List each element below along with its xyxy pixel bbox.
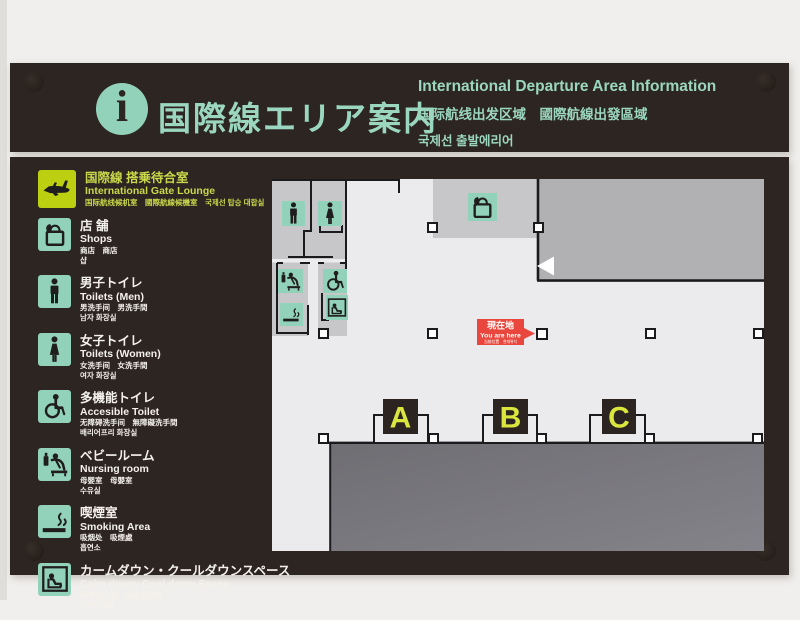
legend-korean: 흡연소 xyxy=(80,543,150,553)
sign-title-translations: International Departure Area Information… xyxy=(418,78,716,149)
gate-c-label: C xyxy=(608,402,630,435)
legend-cjk: 无障碍洗手间 無障礙洗手間 xyxy=(80,418,178,428)
smoking-icon xyxy=(38,505,71,538)
smoking-icon xyxy=(280,303,303,326)
legend-item-toilets-men: 男子トイレ Toilets (Men) 男洗手间 男洗手間 남자 화장실 xyxy=(38,275,270,322)
sign-main-panel: 国際線 搭乗待合室 International Gate Lounge 国际航线… xyxy=(10,157,789,575)
legend-korean: 남자 화장실 xyxy=(80,313,148,323)
legend-title: 店 舗 xyxy=(80,219,118,233)
legend-english: Nursing room xyxy=(80,463,155,476)
legend-english: Shops xyxy=(80,233,118,246)
legend-cjk: 国际航线候机室 國際航線候機室 국제선 탑승 대합실 xyxy=(85,198,264,208)
gate-b-label: B xyxy=(500,402,522,435)
legend-cjk: 吸烟处 吸煙處 xyxy=(80,533,150,543)
legend-title: カームダウン・クールダウンスペース xyxy=(80,564,290,578)
legend-title: 男子トイレ xyxy=(80,276,148,290)
legend-korean: 수유실 xyxy=(80,486,155,496)
legend-item-shops: 店 舗 Shops 商店 商店 샵 xyxy=(38,218,270,265)
legend-english: Calm down, Cool down Space xyxy=(80,578,290,591)
shopping-bag-icon xyxy=(38,218,71,251)
airplane-icon xyxy=(38,170,76,208)
sign-title-chinese: 国际航线出发区域 國際航線出發區域 xyxy=(418,103,716,123)
calm-down-icon xyxy=(38,563,71,596)
legend-item-accessible-toilet: 多機能トイレ Accesible Toilet 无障碍洗手间 無障礙洗手間 배리… xyxy=(38,390,270,437)
upper-block-area xyxy=(538,179,764,282)
legend-english: Smoking Area xyxy=(80,521,150,534)
legend-cjk: 母婴室 母嬰室 xyxy=(80,476,155,486)
legend-korean: 심리안정실 xyxy=(80,601,290,611)
map-legend: 国際線 搭乗待合室 International Gate Lounge 国际航线… xyxy=(38,170,270,620)
sign-title-english: International Departure Area Information xyxy=(418,78,716,96)
gate-a-label: A xyxy=(390,402,412,435)
legend-cjk: 女洗手间 女洗手間 xyxy=(80,361,161,371)
legend-item-nursing-room: ベビールーム Nursing room 母婴室 母嬰室 수유실 xyxy=(38,448,270,495)
nursing-room-icon xyxy=(38,448,71,481)
restricted-area xyxy=(330,444,764,551)
legend-english: Toilets (Men) xyxy=(80,291,148,304)
legend-item-calm-down-space: カームダウン・クールダウンスペース Calm down, Cool down S… xyxy=(38,563,270,610)
legend-item-smoking-area: 喫煙室 Smoking Area 吸烟处 吸煙處 흡연소 xyxy=(38,505,270,552)
legend-title: ベビールーム xyxy=(80,449,155,463)
background-wall-edge xyxy=(0,0,7,600)
man-icon xyxy=(38,275,71,308)
screw xyxy=(756,72,776,92)
wheelchair-icon xyxy=(38,390,71,423)
legend-cjk: 商店 商店 xyxy=(80,246,118,256)
floor-map: A B C xyxy=(272,179,764,551)
legend-english: Accesible Toilet xyxy=(80,406,178,419)
screw xyxy=(24,72,44,92)
you-are-here-position-square xyxy=(537,329,547,339)
legend-english: Toilets (Women) xyxy=(80,348,161,361)
sign-title-korean: 국제선 출발에리어 xyxy=(418,130,716,149)
legend-item-toilets-women: 女子トイレ Toilets (Women) 女洗手间 女洗手間 여자 화장실 xyxy=(38,333,270,380)
you-are-here-jp: 現在地 xyxy=(487,320,514,331)
legend-cjk: 情绪安抚室 情緒安撫室 xyxy=(80,591,290,601)
legend-title: 喫煙室 xyxy=(80,506,150,520)
legend-title: 女子トイレ xyxy=(80,334,161,348)
legend-title: 国際線 搭乗待合室 xyxy=(85,171,264,185)
information-icon: i xyxy=(96,83,148,135)
legend-item-gate-lounge: 国際線 搭乗待合室 International Gate Lounge 国际航线… xyxy=(38,170,270,208)
legend-english: International Gate Lounge xyxy=(85,185,264,198)
sign-title-japanese: 国際線エリア案内 xyxy=(158,92,438,140)
legend-korean: 여자 화장실 xyxy=(80,371,161,381)
you-are-here-en: You are here xyxy=(480,333,521,340)
woman-icon xyxy=(38,333,71,366)
legend-korean: 배리어프리 화장실 xyxy=(80,428,178,438)
information-icon-glyph: i xyxy=(116,85,128,129)
you-are-here-sub: 当前位置 현재위치 xyxy=(484,339,517,344)
legend-title: 多機能トイレ xyxy=(80,391,178,405)
legend-korean: 샵 xyxy=(80,256,118,266)
legend-cjk: 男洗手间 男洗手間 xyxy=(80,303,148,313)
sign-header-panel: i 国際線エリア案内 International Departure Area … xyxy=(10,63,789,152)
